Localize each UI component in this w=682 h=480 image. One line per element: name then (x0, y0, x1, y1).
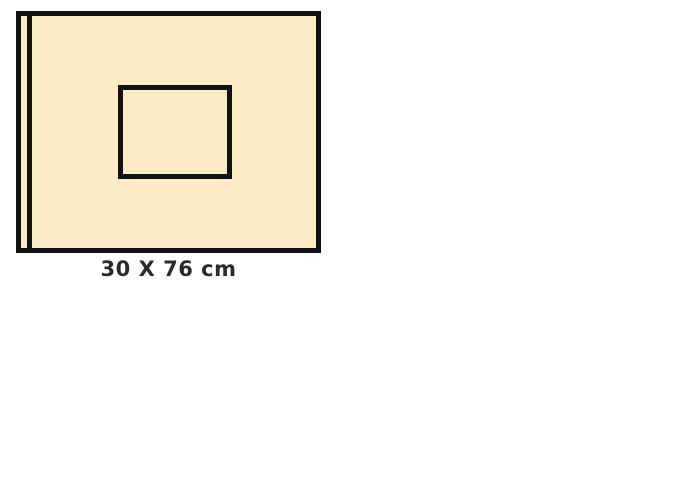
diagram-canvas: 30 X 76 cm (0, 0, 682, 480)
dimension-label: 30 X 76 cm (16, 257, 321, 281)
left-edge-line (27, 16, 32, 248)
outer-rectangle (16, 11, 321, 253)
inner-rectangle (118, 85, 232, 179)
